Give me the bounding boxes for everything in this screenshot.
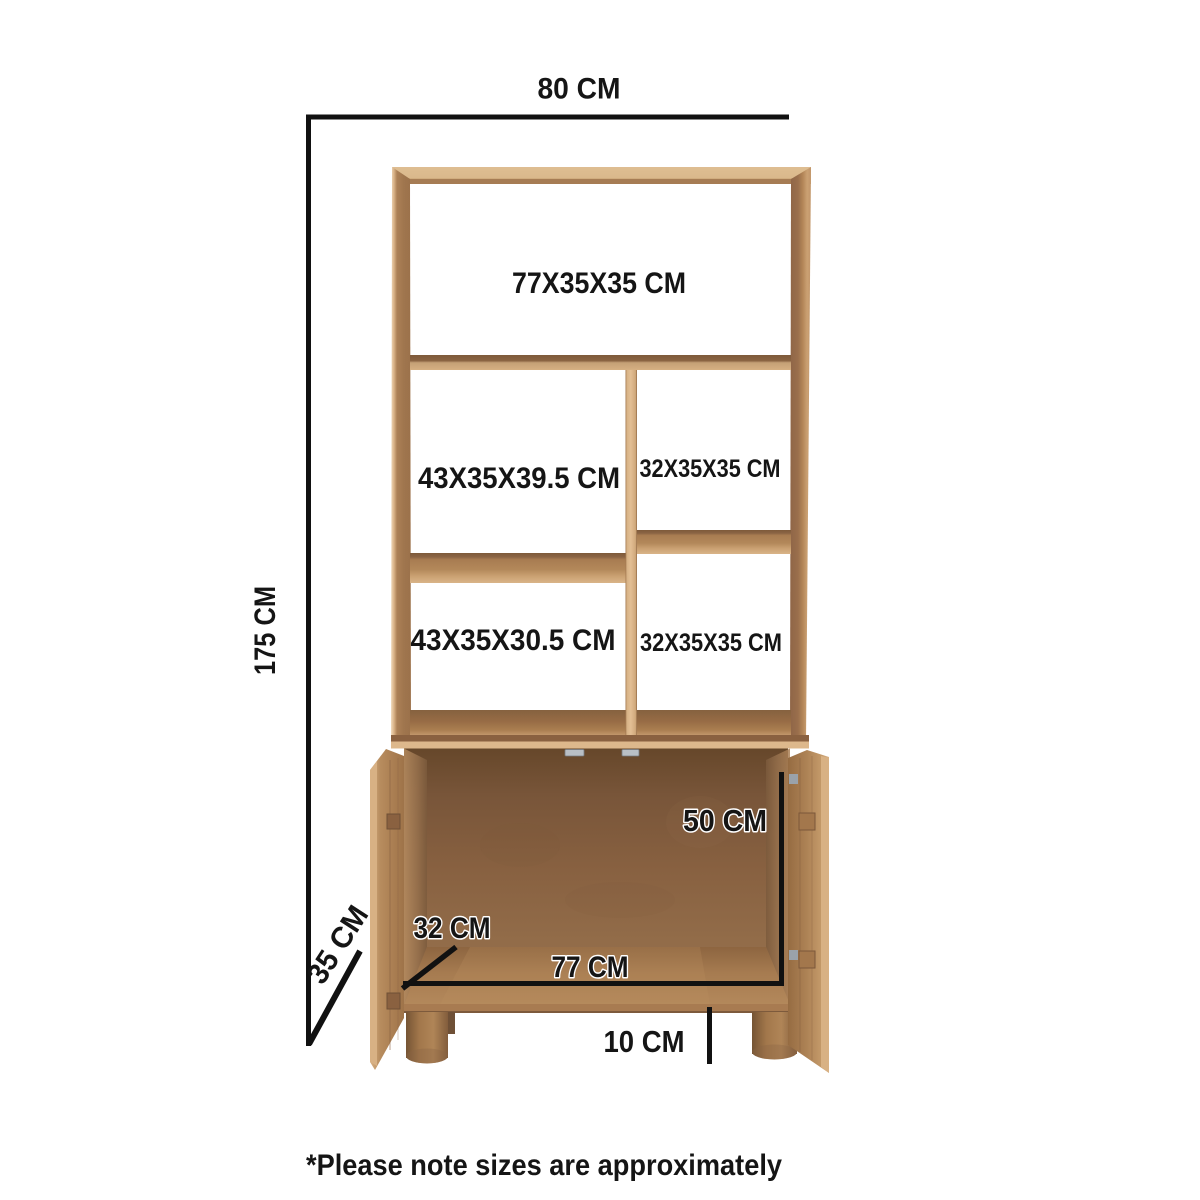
svg-text:32 CM: 32 CM	[414, 912, 491, 945]
svg-text:80 CM: 80 CM	[538, 73, 621, 106]
svg-text:43X35X39.5 CM: 43X35X39.5 CM	[418, 462, 620, 495]
svg-text:32X35X35 CM: 32X35X35 CM	[640, 629, 782, 657]
svg-text:175 CM: 175 CM	[249, 586, 282, 675]
svg-text:43X35X30.5 CM: 43X35X30.5 CM	[411, 624, 616, 657]
svg-text:77 CM: 77 CM	[552, 951, 629, 984]
svg-text:77X35X35 CM: 77X35X35 CM	[512, 267, 686, 300]
svg-text:32X35X35 CM: 32X35X35 CM	[640, 455, 781, 483]
svg-text:50 CM: 50 CM	[683, 803, 767, 838]
svg-text:10 CM: 10 CM	[604, 1024, 685, 1059]
svg-text:*Please note sizes are approxi: *Please note sizes are approximately	[306, 1149, 782, 1182]
